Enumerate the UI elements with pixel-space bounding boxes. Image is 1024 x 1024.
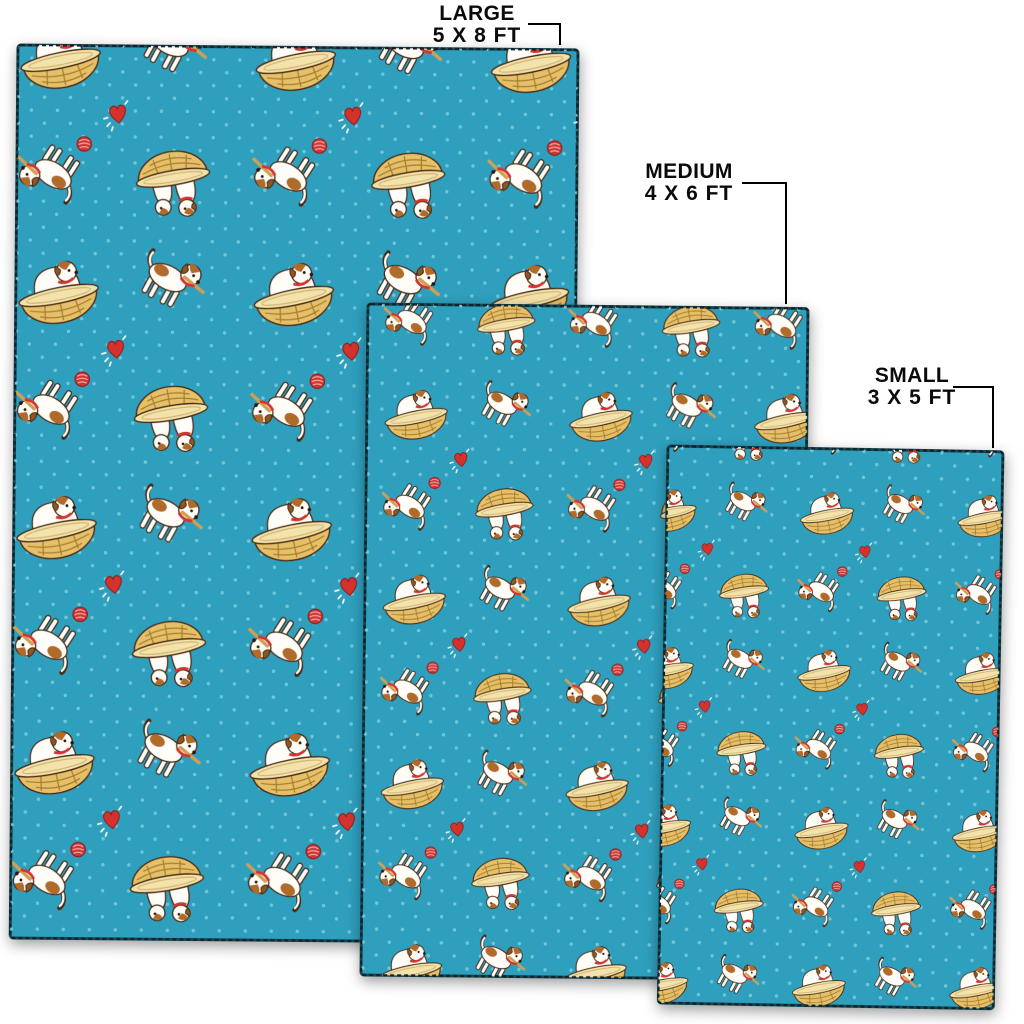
size-callout-medium: MEDIUM 4 X 6 FT <box>609 161 769 205</box>
size-name-medium: MEDIUM <box>609 161 769 183</box>
size-name-large: LARGE <box>397 3 557 25</box>
size-dims-medium: 4 X 6 FT <box>609 183 769 205</box>
size-name-small: SMALL <box>832 365 992 387</box>
rug-illustration <box>0 0 1024 1024</box>
rug-size-chart: LARGE 5 X 8 FT MEDIUM 4 X 6 FT SMALL 3 X… <box>0 0 1024 1024</box>
size-callout-large: LARGE 5 X 8 FT <box>397 3 557 47</box>
rug-small <box>658 446 1003 1009</box>
size-dims-small: 3 X 5 FT <box>832 387 992 409</box>
size-callout-small: SMALL 3 X 5 FT <box>832 365 992 409</box>
size-dims-large: 5 X 8 FT <box>397 25 557 47</box>
